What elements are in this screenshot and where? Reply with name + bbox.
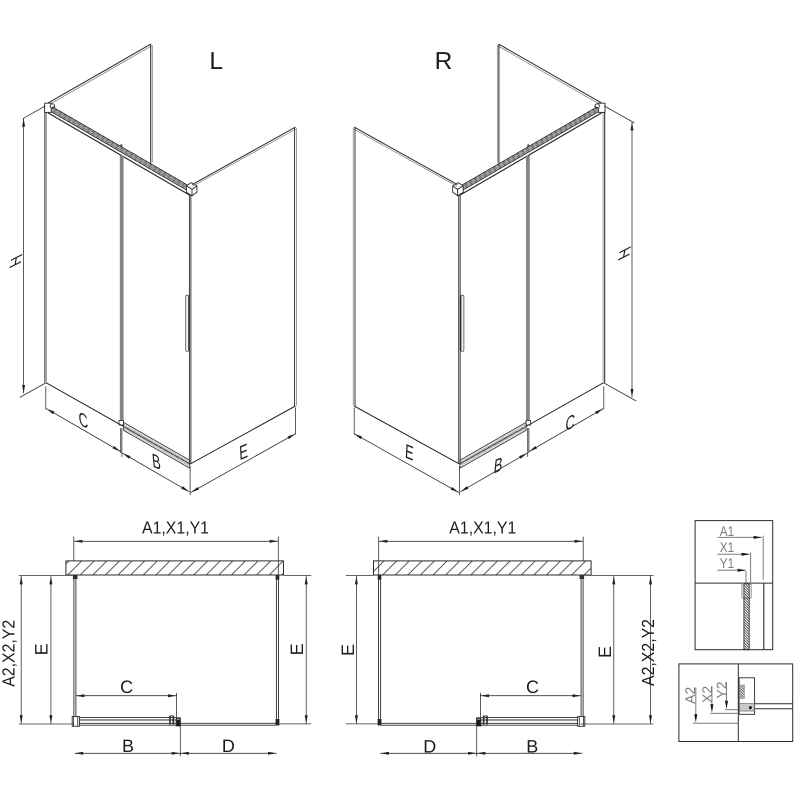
svg-text:X1: X1 <box>720 539 734 555</box>
svg-text:A2,X2,Y2: A2,X2,Y2 <box>0 620 19 687</box>
svg-text:B: B <box>122 736 134 756</box>
svg-text:A1: A1 <box>720 523 734 539</box>
svg-text:C: C <box>526 677 539 697</box>
svg-text:H: H <box>614 243 635 264</box>
svg-text:A1,X1,Y1: A1,X1,Y1 <box>449 518 516 538</box>
svg-text:A2,X2,Y2: A2,X2,Y2 <box>638 619 658 686</box>
svg-text:A1,X1,Y1: A1,X1,Y1 <box>142 518 209 538</box>
svg-text:E: E <box>31 643 51 655</box>
svg-text:Y1: Y1 <box>720 555 734 571</box>
svg-text:B: B <box>526 736 538 756</box>
svg-text:E: E <box>595 646 615 658</box>
svg-text:C: C <box>564 410 575 436</box>
svg-text:E: E <box>287 643 307 655</box>
svg-text:E: E <box>338 644 358 656</box>
svg-text:X2: X2 <box>699 686 715 703</box>
svg-text:E: E <box>239 440 249 465</box>
svg-text:D: D <box>423 737 436 757</box>
svg-text:H: H <box>6 251 27 272</box>
svg-text:C: C <box>78 408 89 434</box>
svg-text:C: C <box>120 677 133 697</box>
svg-text:E: E <box>404 440 414 465</box>
svg-text:R: R <box>435 48 453 75</box>
svg-text:L: L <box>209 48 223 75</box>
svg-text:D: D <box>222 736 235 756</box>
svg-text:B: B <box>493 453 504 478</box>
svg-text:Y2: Y2 <box>714 681 730 698</box>
svg-text:A2: A2 <box>682 687 698 704</box>
svg-text:B: B <box>151 450 162 475</box>
